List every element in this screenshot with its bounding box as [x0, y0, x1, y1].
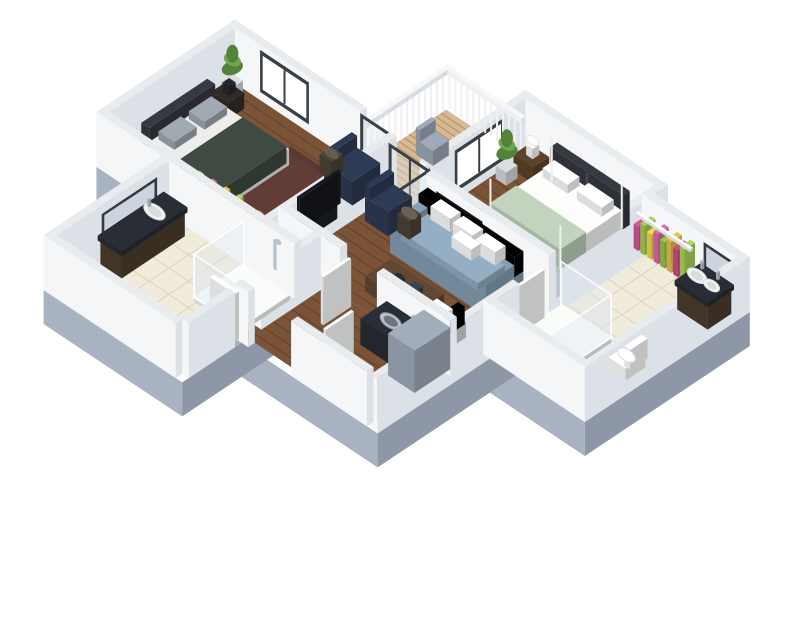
apartment-3d-floorplan: [0, 0, 800, 640]
floorplan-render-canvas: [0, 0, 800, 640]
